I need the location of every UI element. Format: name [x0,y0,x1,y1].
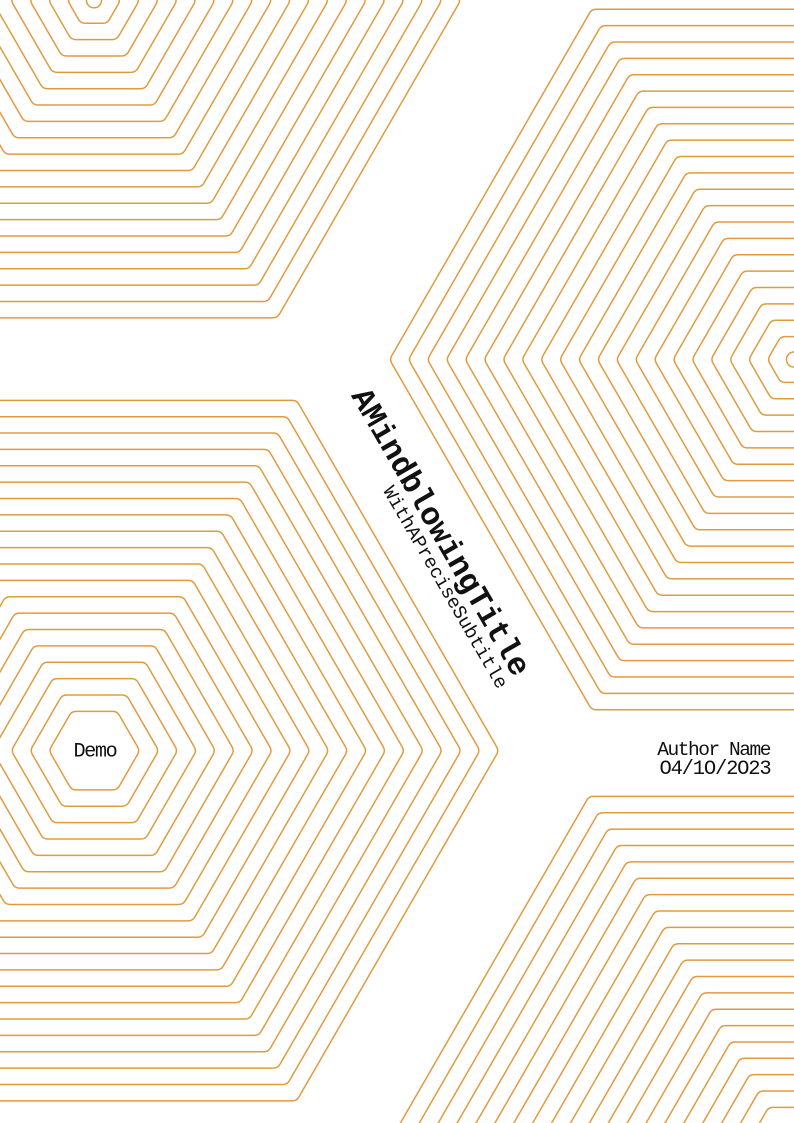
svg-text:O4/1O/2O23: O4/1O/2O23 [659,758,770,781]
svg-text:Demo: Demo [73,741,116,764]
